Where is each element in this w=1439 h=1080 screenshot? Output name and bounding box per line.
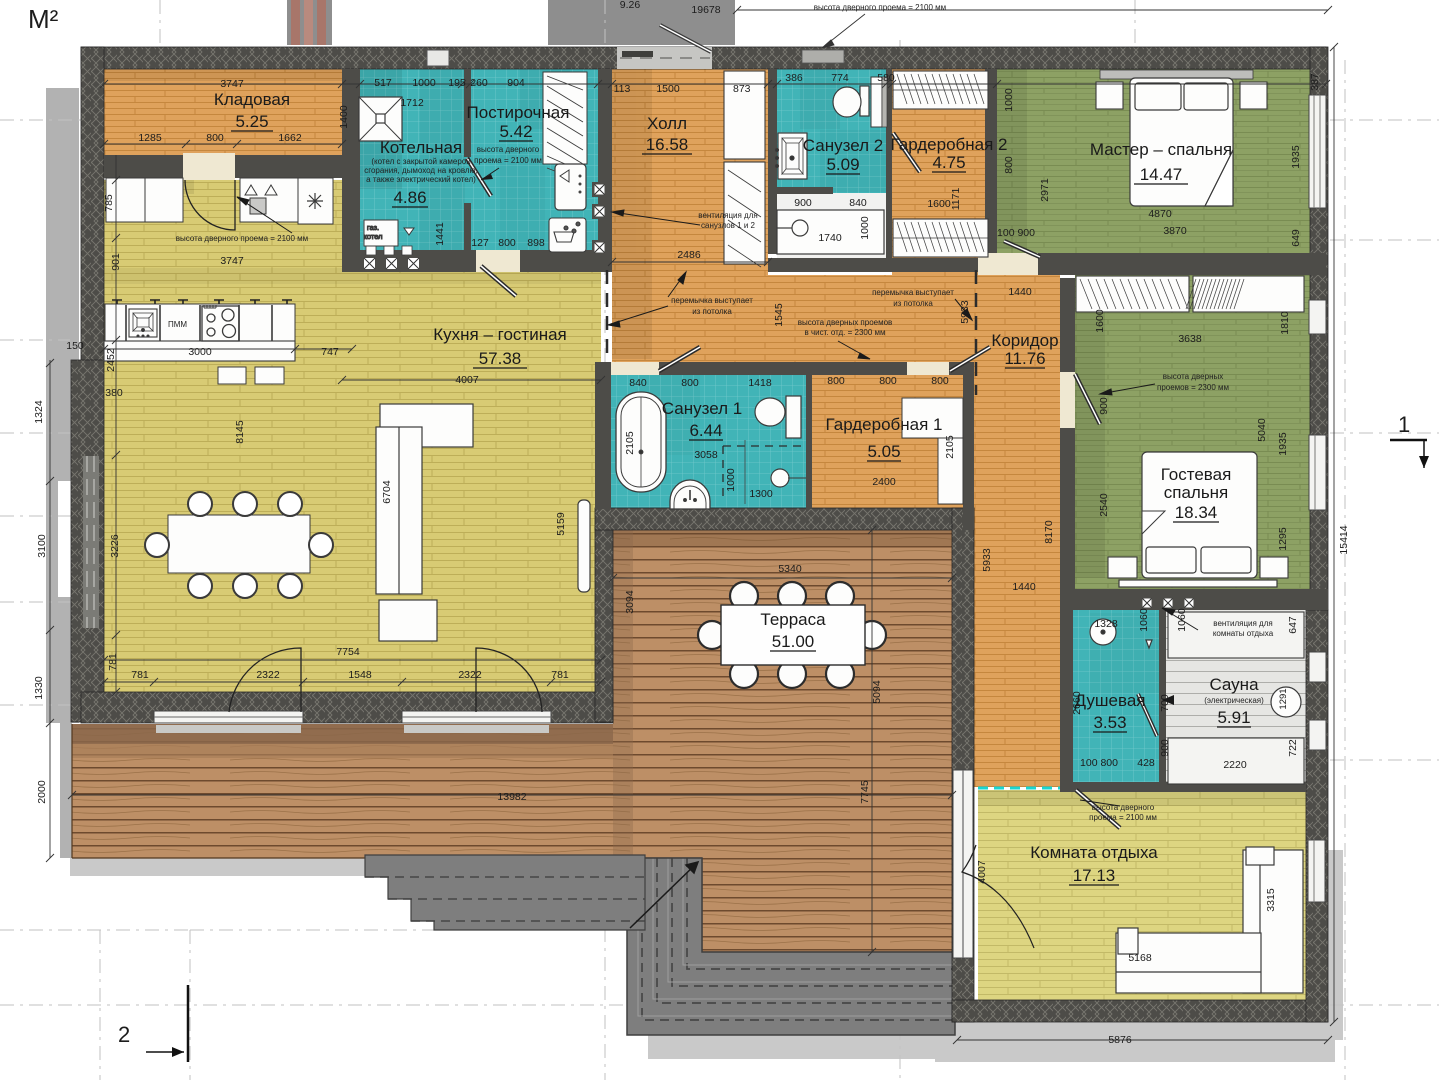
svg-text:комнаты отдыха: комнаты отдыха xyxy=(1213,629,1274,638)
svg-text:840: 840 xyxy=(849,197,867,209)
svg-text:4.86: 4.86 xyxy=(393,188,426,207)
svg-text:2105: 2105 xyxy=(624,431,636,455)
svg-text:2: 2 xyxy=(118,1022,130,1047)
svg-text:3.53: 3.53 xyxy=(1093,713,1126,732)
svg-text:1662: 1662 xyxy=(278,132,302,144)
svg-text:проемов = 2300 мм: проемов = 2300 мм xyxy=(1157,383,1229,392)
svg-text:Гардеробная 2: Гардеробная 2 xyxy=(890,135,1007,154)
svg-text:781: 781 xyxy=(107,653,119,671)
svg-text:900: 900 xyxy=(794,197,812,209)
svg-text:М²: М² xyxy=(28,4,59,34)
svg-text:Гостевая: Гостевая xyxy=(1161,465,1232,484)
svg-text:3747: 3747 xyxy=(220,255,244,267)
svg-text:из потолка: из потолка xyxy=(692,307,732,316)
svg-text:517: 517 xyxy=(374,77,392,89)
svg-text:Постирочная: Постирочная xyxy=(467,103,570,122)
svg-text:1712: 1712 xyxy=(400,97,424,109)
svg-text:700: 700 xyxy=(1159,694,1171,712)
svg-text:4870: 4870 xyxy=(1148,208,1172,220)
svg-text:(электрическая): (электрическая) xyxy=(1204,696,1264,705)
svg-text:(котел с закрытой камерой: (котел с закрытой камерой xyxy=(371,157,470,166)
svg-text:1300: 1300 xyxy=(749,488,773,500)
svg-text:2400: 2400 xyxy=(872,476,896,488)
svg-text:18.34: 18.34 xyxy=(1175,503,1218,522)
svg-text:4007: 4007 xyxy=(976,860,988,884)
svg-text:2540: 2540 xyxy=(1098,493,1110,517)
svg-text:8145: 8145 xyxy=(234,420,246,444)
svg-text:1545: 1545 xyxy=(773,303,785,327)
svg-text:перемычка выступает: перемычка выступает xyxy=(671,296,753,305)
svg-text:3094: 3094 xyxy=(624,590,636,614)
svg-text:Котельная: Котельная xyxy=(380,138,462,157)
svg-text:800: 800 xyxy=(681,377,699,389)
svg-text:13982: 13982 xyxy=(497,791,526,803)
svg-text:2322: 2322 xyxy=(256,669,280,681)
svg-text:3000: 3000 xyxy=(188,346,212,358)
svg-text:1935: 1935 xyxy=(1290,145,1302,169)
svg-text:428: 428 xyxy=(1137,757,1155,769)
svg-text:2452: 2452 xyxy=(105,348,117,372)
svg-text:вентиляция для: вентиляция для xyxy=(698,211,757,220)
svg-text:Мастер – спальня: Мастер – спальня xyxy=(1090,140,1232,159)
svg-text:800: 800 xyxy=(827,375,845,387)
svg-text:котел: котел xyxy=(363,232,382,241)
svg-text:1548: 1548 xyxy=(348,669,372,681)
svg-text:5.09: 5.09 xyxy=(826,155,859,174)
svg-text:5.42: 5.42 xyxy=(499,122,532,141)
svg-text:15414: 15414 xyxy=(1338,525,1350,554)
svg-text:57.38: 57.38 xyxy=(479,349,522,368)
svg-text:в чист. отд. = 2300 мм: в чист. отд. = 2300 мм xyxy=(804,328,885,337)
svg-text:5933: 5933 xyxy=(959,300,971,324)
svg-text:11.76: 11.76 xyxy=(1004,349,1045,368)
svg-text:6704: 6704 xyxy=(381,480,393,504)
svg-text:5.25: 5.25 xyxy=(235,112,268,131)
svg-text:195: 195 xyxy=(448,77,466,89)
svg-text:3870: 3870 xyxy=(1163,225,1187,237)
svg-text:1060: 1060 xyxy=(1176,608,1188,632)
svg-text:4.75: 4.75 xyxy=(932,153,965,172)
svg-text:387: 387 xyxy=(1309,73,1321,91)
svg-text:высота дверных проемов: высота дверных проемов xyxy=(798,318,893,327)
svg-text:873: 873 xyxy=(733,83,751,95)
svg-text:7745: 7745 xyxy=(859,780,871,804)
svg-text:3315: 3315 xyxy=(1265,888,1277,912)
svg-text:580: 580 xyxy=(877,72,895,84)
svg-text:1328: 1328 xyxy=(1094,618,1118,630)
svg-text:2105: 2105 xyxy=(944,435,956,459)
svg-text:7754: 7754 xyxy=(336,646,360,658)
svg-text:5.05: 5.05 xyxy=(867,442,900,461)
svg-text:1600: 1600 xyxy=(1094,309,1106,333)
svg-text:3226: 3226 xyxy=(109,534,121,558)
svg-text:1740: 1740 xyxy=(818,232,842,244)
svg-text:800: 800 xyxy=(1003,156,1015,174)
svg-text:проема = 2100 мм: проема = 2100 мм xyxy=(1089,813,1157,822)
svg-text:Коридор: Коридор xyxy=(991,331,1058,350)
svg-text:1291: 1291 xyxy=(1278,688,1289,709)
svg-text:649: 649 xyxy=(1290,229,1302,247)
svg-text:1060: 1060 xyxy=(1138,608,1150,632)
svg-text:17.13: 17.13 xyxy=(1073,866,1116,885)
svg-text:ПММ: ПММ xyxy=(168,320,187,329)
svg-text:1000: 1000 xyxy=(412,77,436,89)
svg-text:а также электрический котел): а также электрический котел) xyxy=(366,175,476,184)
svg-text:Комната отдыха: Комната отдыха xyxy=(1030,843,1158,862)
svg-text:2000: 2000 xyxy=(36,780,48,804)
svg-text:800: 800 xyxy=(206,132,224,144)
svg-text:Душевая: Душевая xyxy=(1075,691,1146,710)
svg-text:781: 781 xyxy=(551,669,569,681)
svg-text:3638: 3638 xyxy=(1178,333,1202,345)
svg-text:3100: 3100 xyxy=(36,534,48,558)
svg-text:900: 900 xyxy=(1098,397,1110,415)
svg-text:386: 386 xyxy=(785,72,803,84)
svg-text:перемычка выступает: перемычка выступает xyxy=(872,288,954,297)
svg-text:380: 380 xyxy=(105,387,123,399)
svg-text:Санузел 1: Санузел 1 xyxy=(662,399,742,418)
svg-text:2322: 2322 xyxy=(458,669,482,681)
svg-text:5340: 5340 xyxy=(778,563,802,575)
svg-text:113: 113 xyxy=(614,83,631,95)
svg-text:781: 781 xyxy=(131,669,149,681)
svg-text:100 800: 100 800 xyxy=(1080,757,1118,769)
svg-text:5040: 5040 xyxy=(1256,418,1268,442)
svg-text:1285: 1285 xyxy=(138,132,162,144)
svg-text:1: 1 xyxy=(1398,412,1410,437)
svg-text:260: 260 xyxy=(470,77,488,89)
svg-text:5094: 5094 xyxy=(871,680,883,704)
svg-text:1295: 1295 xyxy=(1277,527,1289,551)
svg-text:19678: 19678 xyxy=(691,4,720,16)
svg-text:1000: 1000 xyxy=(725,468,737,492)
svg-text:5876: 5876 xyxy=(1108,1034,1132,1046)
svg-text:высота дверных: высота дверных xyxy=(1163,372,1224,381)
svg-text:3747: 3747 xyxy=(220,78,244,90)
svg-text:5168: 5168 xyxy=(1128,952,1152,964)
svg-text:Санузел 2: Санузел 2 xyxy=(803,136,883,155)
svg-text:санузлов 1 и 2: санузлов 1 и 2 xyxy=(701,221,755,230)
svg-text:Гардеробная 1: Гардеробная 1 xyxy=(825,415,942,434)
svg-text:898: 898 xyxy=(527,237,545,249)
svg-text:спальня: спальня xyxy=(1164,483,1229,502)
svg-text:Кладовая: Кладовая xyxy=(214,90,290,109)
svg-text:1810: 1810 xyxy=(1279,311,1291,335)
svg-text:901: 901 xyxy=(110,253,122,271)
svg-text:1500: 1500 xyxy=(656,83,680,95)
svg-text:1171: 1171 xyxy=(950,188,962,211)
svg-text:150: 150 xyxy=(66,340,84,352)
svg-text:4007: 4007 xyxy=(455,374,479,386)
svg-text:1324: 1324 xyxy=(33,400,45,424)
svg-text:из потолка: из потолка xyxy=(893,299,933,308)
svg-text:6.44: 6.44 xyxy=(689,421,722,440)
svg-text:785: 785 xyxy=(103,194,115,212)
svg-text:840: 840 xyxy=(629,377,647,389)
svg-text:1330: 1330 xyxy=(33,676,45,700)
svg-text:800: 800 xyxy=(498,237,516,249)
svg-text:14.47: 14.47 xyxy=(1140,165,1183,184)
svg-text:1441: 1441 xyxy=(434,222,446,246)
svg-text:1440: 1440 xyxy=(1008,286,1032,298)
svg-text:газ.: газ. xyxy=(367,223,379,232)
svg-text:2486: 2486 xyxy=(677,249,701,261)
svg-text:5933: 5933 xyxy=(981,548,993,572)
svg-text:16.58: 16.58 xyxy=(646,135,689,154)
svg-text:Кухня – гостиная: Кухня – гостиная xyxy=(433,325,567,344)
svg-text:51.00: 51.00 xyxy=(772,632,815,651)
svg-text:774: 774 xyxy=(831,72,849,84)
svg-text:100 900: 100 900 xyxy=(997,227,1035,239)
svg-text:3058: 3058 xyxy=(694,449,718,461)
svg-text:1600: 1600 xyxy=(927,198,951,210)
svg-text:5159: 5159 xyxy=(555,512,567,536)
svg-text:вентиляция для: вентиляция для xyxy=(1213,619,1272,628)
svg-text:высота дверного проема = 2100: высота дверного проема = 2100 мм xyxy=(814,3,946,12)
svg-text:8170: 8170 xyxy=(1043,520,1055,544)
svg-text:2220: 2220 xyxy=(1223,759,1247,771)
svg-text:1000: 1000 xyxy=(859,216,871,240)
svg-text:высота дверного: высота дверного xyxy=(477,145,540,154)
svg-text:1000: 1000 xyxy=(1003,88,1015,112)
svg-text:1440: 1440 xyxy=(1012,581,1036,593)
svg-text:5.91: 5.91 xyxy=(1217,708,1250,727)
svg-text:1418: 1418 xyxy=(748,377,772,389)
svg-text:высота дверного: высота дверного xyxy=(1092,803,1155,812)
svg-text:127: 127 xyxy=(471,237,489,249)
svg-text:Холл: Холл xyxy=(647,114,687,133)
svg-text:Терраса: Терраса xyxy=(760,610,826,629)
svg-text:904: 904 xyxy=(507,77,525,89)
svg-text:1935: 1935 xyxy=(1277,432,1289,456)
svg-text:900: 900 xyxy=(1159,739,1171,757)
svg-text:проема = 2100 мм: проема = 2100 мм xyxy=(474,156,542,165)
svg-text:сгорания, дымоход на кровлю,: сгорания, дымоход на кровлю, xyxy=(364,166,478,175)
svg-text:2971: 2971 xyxy=(1039,178,1051,202)
svg-text:722: 722 xyxy=(1287,739,1299,757)
svg-text:высота дверного проема = 2100: высота дверного проема = 2100 мм xyxy=(176,234,308,243)
svg-text:Сауна: Сауна xyxy=(1209,675,1259,694)
svg-text:647: 647 xyxy=(1287,616,1299,634)
svg-text:9.26: 9.26 xyxy=(620,0,641,11)
svg-text:1400: 1400 xyxy=(338,105,350,129)
svg-text:800: 800 xyxy=(879,375,897,387)
svg-text:747: 747 xyxy=(321,346,339,358)
svg-text:800: 800 xyxy=(931,375,949,387)
svg-text:2660: 2660 xyxy=(1071,691,1083,715)
